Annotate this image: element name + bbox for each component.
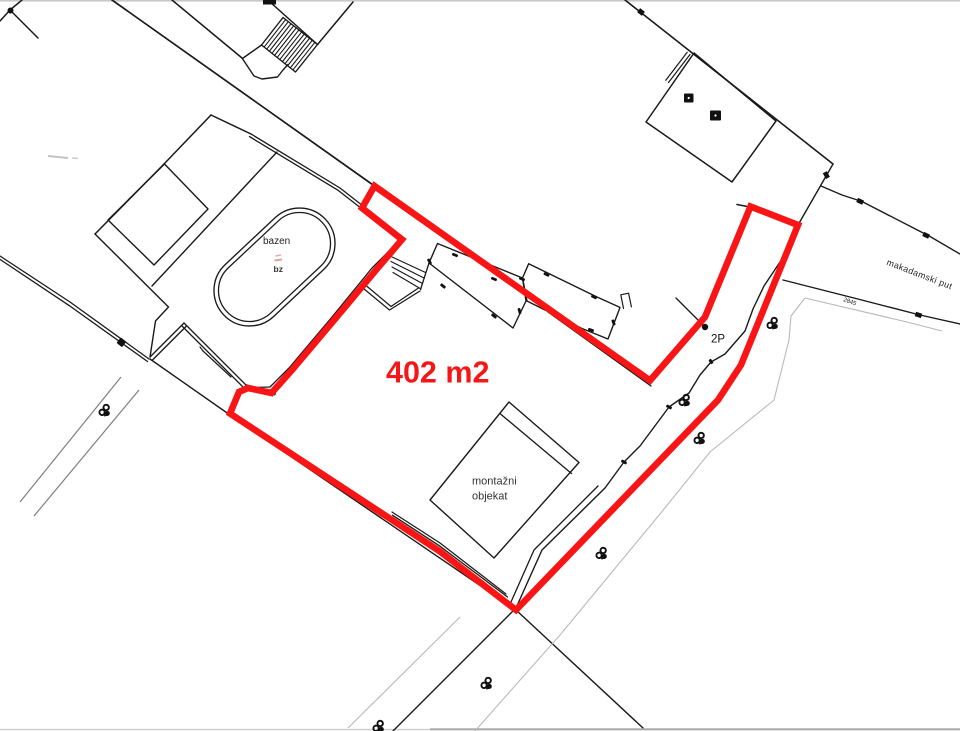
svg-text:bazen: bazen [263, 236, 290, 247]
svg-text:bz: bz [274, 264, 283, 274]
svg-text:2P: 2P [711, 334, 725, 346]
svg-text:montažni: montažni [472, 476, 517, 488]
svg-text:402 m2: 402 m2 [386, 356, 489, 390]
svg-text:objekat: objekat [472, 491, 507, 503]
